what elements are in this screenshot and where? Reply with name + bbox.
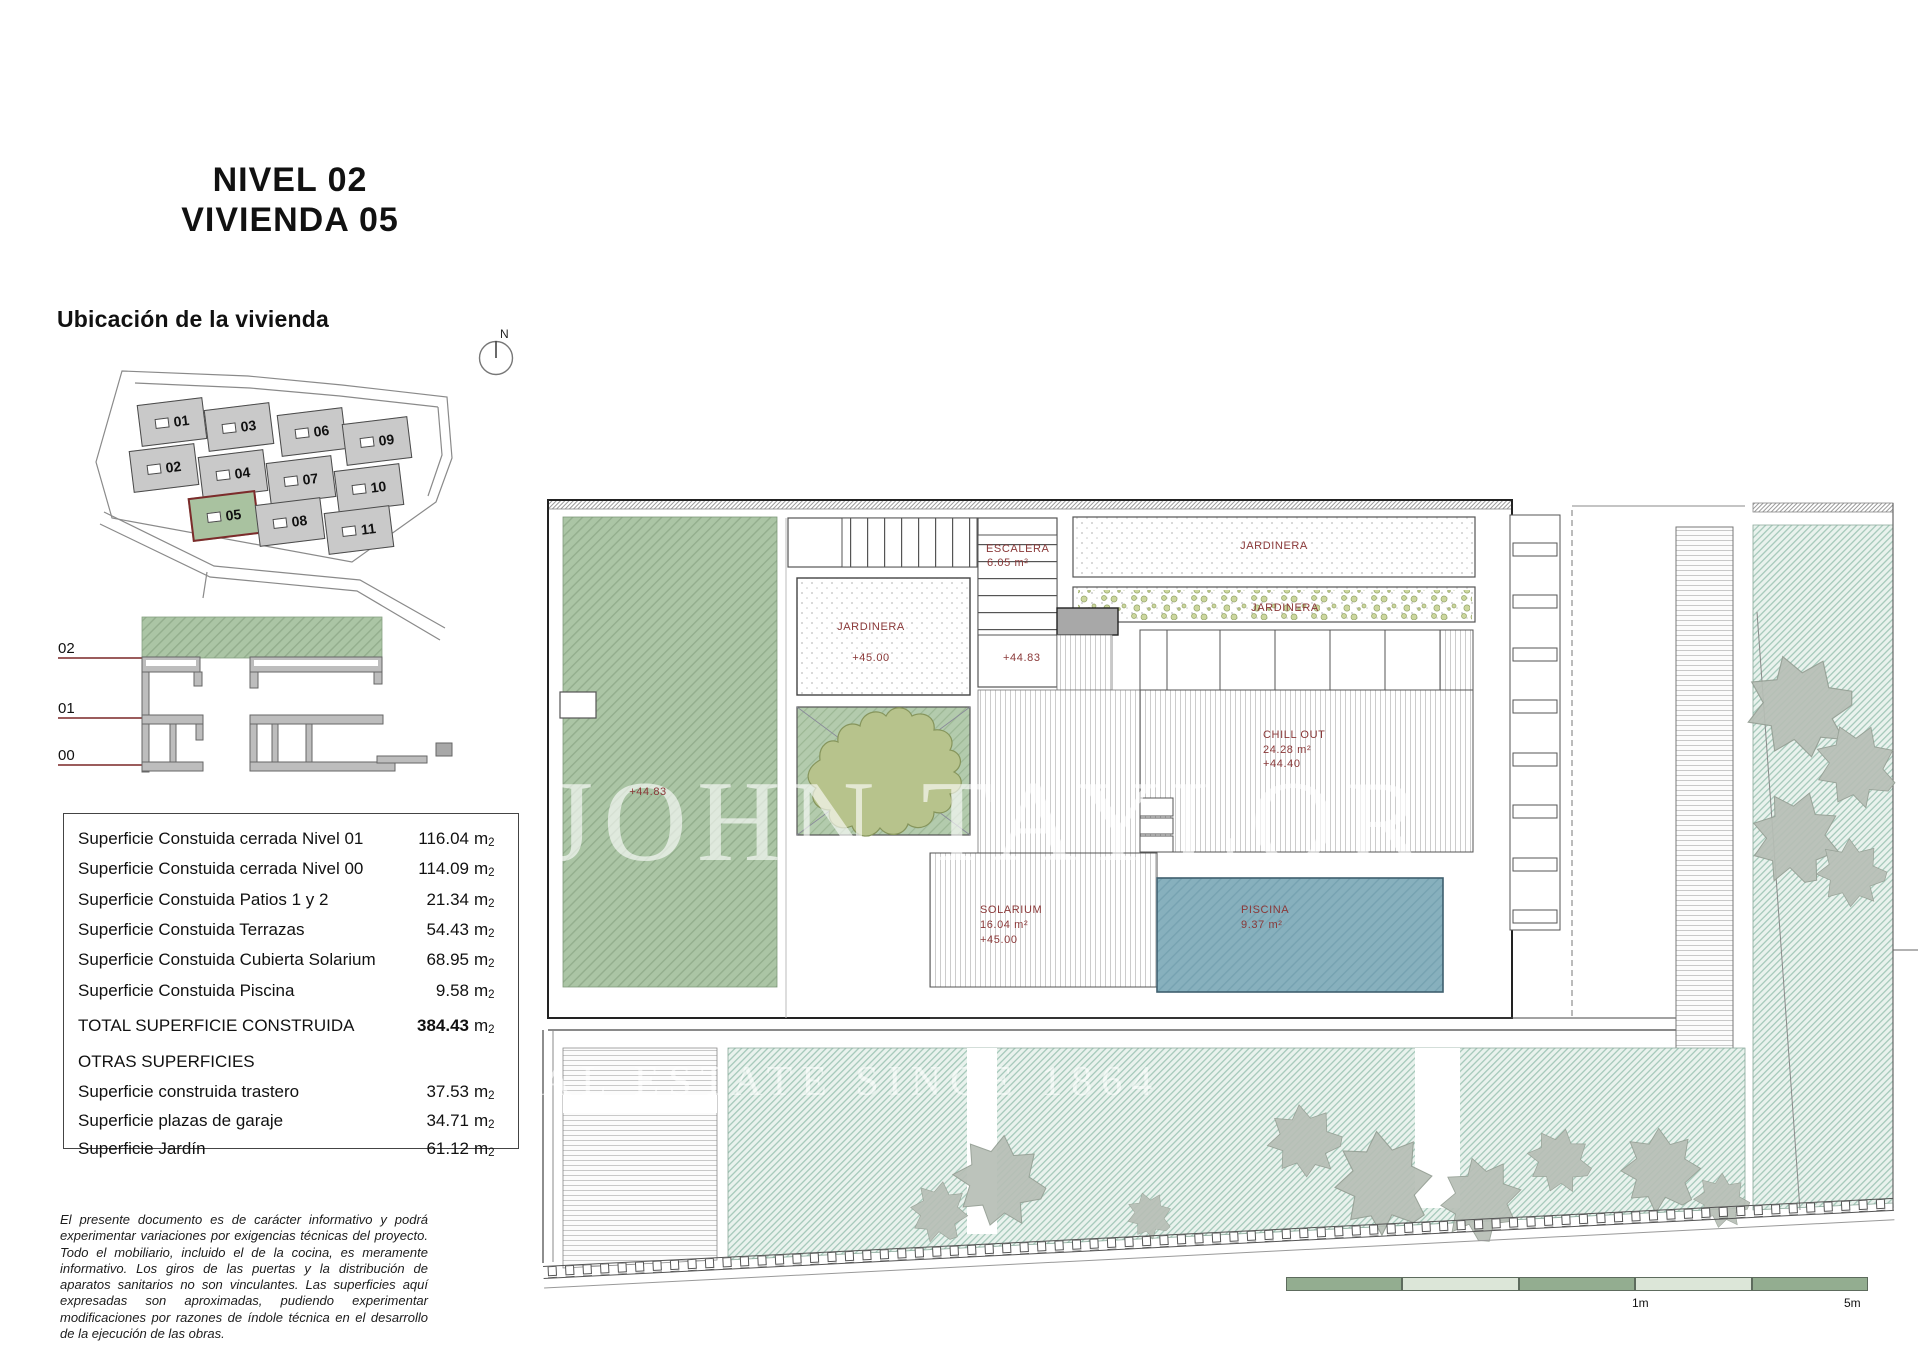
unit-window [221,422,236,434]
section-level-02: 02 [58,640,75,657]
piscina-label: PISCINA [1241,904,1289,917]
site-unit-01: 01 [137,397,208,447]
unit-window [294,427,309,439]
total-label: TOTAL SUPERFICIE CONSTRUIDA [78,1016,399,1036]
svg-text:N: N [500,327,509,341]
unit-number: 02 [165,458,182,476]
scale-segment [1752,1277,1868,1291]
site-unit-10: 10 [334,463,405,513]
row-label: Superficie Constuida cerrada Nivel 01 [78,829,399,849]
row-label: Superficie Constuida cerrada Nivel 00 [78,859,399,879]
unit-window [283,475,298,487]
solarium-level: +45.00 [980,934,1018,947]
unit-number: 09 [378,431,395,449]
row-value: 37.53 [399,1082,469,1102]
louver-wall [1510,515,1560,930]
row-value: 116.04 [399,829,469,849]
escalera-area: 6.05 m² [987,557,1029,570]
unit-window [146,463,161,475]
site-unit-09: 09 [342,416,413,466]
unit-number: 08 [291,512,308,530]
table-row: Superficie Jardín 61.12 m2 [78,1135,502,1164]
areas-table: Superficie Constuida cerrada Nivel 01 11… [63,813,519,1149]
otras-rows: Superficie construida trastero 37.53 m2 … [78,1078,502,1164]
plot-boundary-hatch [548,500,1512,509]
row-value: 54.43 [399,920,469,940]
table-row: Superficie Constuida Patios 1 y 2 21.34 … [78,885,502,915]
scale-segment [1286,1277,1402,1291]
row-unit: m2 [469,981,502,1001]
table-row: Superficie Constuida Cubierta Solarium 6… [78,945,502,975]
mid-level-label: +44.83 [1003,652,1041,665]
title-unit: VIVIENDA 05 [120,200,460,240]
plan-sheet: N [0,0,1920,1358]
section-level-01: 01 [58,700,75,717]
row-value: 68.95 [399,950,469,970]
terrace-level-label: +44.83 [598,786,698,799]
unit-window [206,511,221,523]
north-arrow-icon: N [480,327,513,375]
row-unit: m2 [469,920,502,940]
chill-out-area: 24.28 m² [1263,744,1311,757]
solarium-deck [930,853,1157,987]
site-unit-06: 06 [277,407,348,457]
row-value: 9.58 [399,981,469,1001]
table-row: Superficie construida trastero 37.53 m2 [78,1078,502,1107]
jardinera-mid-label: JARDINERA [1235,602,1335,615]
solarium-label: SOLARIUM [980,904,1042,917]
site-unit-05: 05 [188,490,261,542]
page-title: NIVEL 02 VIVIENDA 05 [120,160,460,240]
row-value: 61.12 [399,1139,469,1159]
total-value: 384.43 [399,1016,469,1036]
unit-window [154,417,169,429]
site-unit-11: 11 [324,505,395,555]
location-heading: Ubicación de la vivienda [57,306,329,333]
piscina-area: 9.37 m² [1241,919,1283,932]
scale-label-5m: 5m [1844,1296,1861,1310]
table-row: Superficie Constuida Terrazas 54.43 m2 [78,915,502,945]
scale-segment [1519,1277,1635,1291]
unit-window [351,483,366,495]
row-unit: m2 [469,829,502,849]
escalera-label: ESCALERA [986,543,1050,556]
row-label: Superficie Constuida Terrazas [78,920,399,940]
jardinera-room-level: +45.00 [811,652,931,665]
scale-segment [1635,1277,1751,1291]
unit-number: 01 [173,412,190,430]
chill-out-level: +44.40 [1263,758,1301,771]
pool [1157,878,1443,992]
unit-number: 05 [225,506,242,524]
row-unit: m2 [469,1082,502,1102]
unit-number: 03 [240,417,257,435]
pergola [1140,630,1473,690]
tree-planter [797,707,970,836]
title-level: NIVEL 02 [120,160,460,200]
table-row: Superficie Constuida Piscina 9.58 m2 [78,975,502,1005]
jardinera-room-label: JARDINERA [811,621,931,634]
row-label: Superficie Constuida Patios 1 y 2 [78,890,399,910]
terrace-green [563,517,777,987]
row-value: 34.71 [399,1111,469,1131]
jardinera-room [797,578,970,695]
section-diagram [58,617,452,772]
unit-number: 06 [313,422,330,440]
unit-window [215,469,230,481]
site-unit-08: 08 [255,497,326,547]
row-unit: m2 [469,890,502,910]
row-unit: m2 [469,1111,502,1131]
areas-rows: Superficie Constuida cerrada Nivel 01 11… [78,824,502,1006]
unit-window [359,436,374,448]
row-label: Superficie Jardín [78,1139,399,1159]
scale-label-1m: 1m [1632,1296,1649,1310]
row-value: 114.09 [399,859,469,879]
gray-structure [1057,608,1118,635]
jardinera-top-label: JARDINERA [1224,540,1324,553]
scale-bar [1286,1277,1868,1291]
floor-plan [543,500,1918,1288]
row-value: 21.34 [399,890,469,910]
unit-number: 04 [234,464,251,482]
site-unit-03: 03 [204,402,275,452]
unit-number: 10 [370,478,387,496]
unit-number: 11 [360,520,377,538]
table-row: Superficie Constuida cerrada Nivel 01 11… [78,824,502,854]
chill-out-deck [1140,690,1473,852]
areas-total-row: TOTAL SUPERFICIE CONSTRUIDA 384.43 m2 [78,1010,502,1042]
solarium-area: 16.04 m² [980,919,1028,932]
otras-heading: OTRAS SUPERFICIES [78,1046,502,1078]
section-level-00: 00 [58,747,75,764]
table-row: Superficie plazas de garaje 34.71 m2 [78,1106,502,1135]
row-unit: m2 [469,1139,502,1159]
row-label: Superficie Constuida Cubierta Solarium [78,950,399,970]
chill-out-label: CHILL OUT [1263,729,1325,742]
unit-number: 07 [302,470,319,488]
site-unit-04: 04 [198,449,269,499]
row-label: Superficie Constuida Piscina [78,981,399,1001]
unit-window [342,525,357,537]
disclaimer-text: El presente documento es de carácter inf… [60,1212,428,1342]
total-unit: m2 [469,1016,502,1036]
row-unit: m2 [469,950,502,970]
table-row: Superficie Constuida cerrada Nivel 00 11… [78,854,502,884]
site-unit-07: 07 [266,455,337,505]
row-label: Superficie plazas de garaje [78,1111,399,1131]
unit-window [272,517,287,529]
row-unit: m2 [469,859,502,879]
scale-segment [1402,1277,1518,1291]
row-label: Superficie construida trastero [78,1082,399,1102]
site-unit-02: 02 [129,443,200,493]
